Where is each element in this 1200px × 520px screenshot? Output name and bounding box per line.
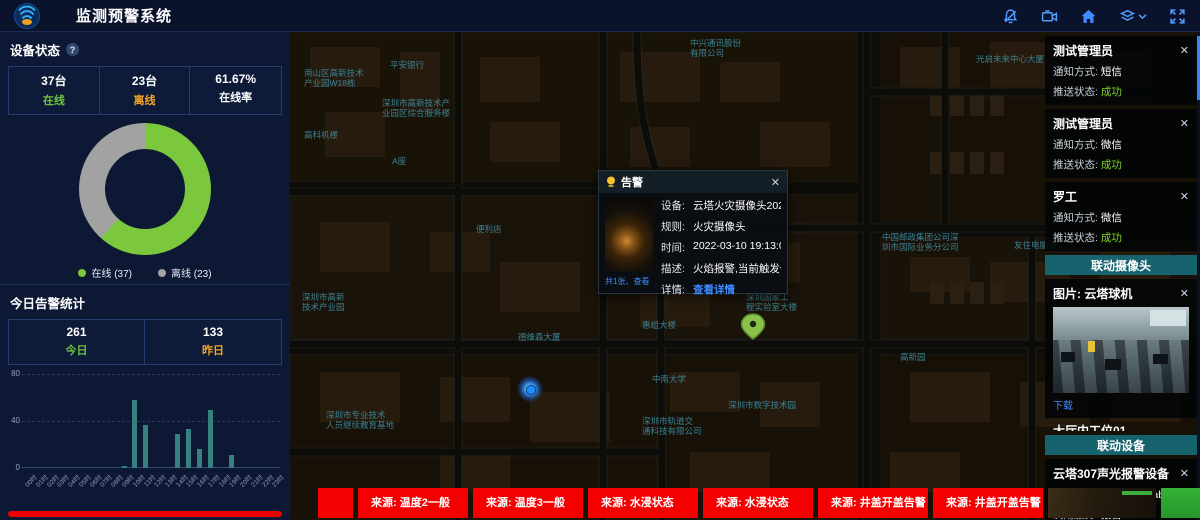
bar [226, 374, 237, 468]
map-place-label: 高科机楼 [304, 130, 339, 140]
device-donut-chart [0, 123, 290, 257]
bar [205, 374, 216, 468]
close-icon[interactable]: ✕ [1180, 467, 1189, 480]
map-place-label: 平安银行 [390, 60, 425, 70]
bar [44, 374, 55, 468]
x-axis-label: 23时 [269, 472, 286, 489]
bottom-alert-bar: 来源: 温度2一般来源: 温度3一般来源: 水浸状态来源: 水浸状态来源: 井盖… [290, 488, 1200, 520]
donut-legend: 在线 (37) 离线 (23) [0, 265, 290, 280]
scrolling-alert-item[interactable]: 来源: 水浸状态 [703, 488, 813, 518]
header-icons [1002, 0, 1186, 32]
map-place-label: 中南大学 [652, 374, 687, 384]
map-place-label: 深圳市高新技术产业园 [302, 292, 345, 312]
map-place-label: 高新园 [900, 352, 926, 362]
layers-icon [1119, 8, 1136, 25]
legend-online[interactable]: 在线 (37) [91, 265, 132, 280]
map-place-label: 南山区高新技术产业园W18栋 [304, 68, 364, 88]
map-place-label: 惠组大楼 [642, 320, 677, 330]
scrolling-alert-item[interactable]: 来源: 井盖开盖告警 [933, 488, 1043, 518]
notification-list: 测试管理员 ✕ 通知方式: 短信 推送状态: 成功 测试管理员 ✕ 通知方式: … [1045, 36, 1197, 251]
alarm-popup-rows: 设备: 云塔火灾摄像头202 规则: 火灾摄像头 时间: 2022-03-10 … [661, 198, 781, 303]
layers-menu[interactable] [1119, 8, 1147, 25]
close-icon[interactable]: ✕ [1180, 287, 1189, 300]
bar [33, 374, 44, 468]
today-alarms-table: 261 今日 133 昨日 [8, 319, 282, 365]
close-icon[interactable]: ✕ [1180, 44, 1189, 57]
video-thumbnail-1[interactable] [1048, 488, 1156, 518]
alarm-detail-row: 设备: 云塔火灾摄像头202 [661, 198, 781, 213]
map-place-label: 深圳市高新技术产业园区综合服务楼 [382, 98, 451, 118]
fullscreen-icon[interactable] [1169, 8, 1186, 25]
alarm-popup: 告警 ✕ 共1张、查看 设备: 云塔火灾摄像头202 规则: 火灾摄像头 时间:… [598, 170, 788, 294]
map-place-label: 深圳市数字技术园 [728, 400, 796, 410]
alarm-detail-value: 云塔火灾摄像头202 [693, 198, 781, 213]
legend-dot-online [78, 269, 86, 277]
linked-cameras-header[interactable]: 联动摄像头 [1045, 255, 1197, 275]
home-icon[interactable] [1080, 8, 1097, 25]
notification-card: 测试管理员 ✕ 通知方式: 微信 推送状态: 成功 [1045, 109, 1197, 178]
left-panel: 设备状态 ? 37台 在线 23台 离线 61.67% 在线率 在线 (37) [0, 32, 290, 520]
alarm-detail-label: 规则: [661, 219, 693, 234]
close-icon[interactable]: ✕ [771, 176, 780, 189]
video-camera-icon[interactable] [1041, 8, 1058, 25]
device-status-table: 37台 在线 23台 离线 61.67% 在线率 [8, 66, 282, 115]
linked-devices-header[interactable]: 联动设备 [1045, 435, 1197, 455]
alarm-detail-label: 描述: [661, 261, 693, 276]
stat-today: 261 今日 [9, 320, 145, 364]
bar [259, 374, 270, 468]
bar [194, 374, 205, 468]
device-name: 云塔307声光报警设备 [1053, 465, 1169, 482]
bar-series [22, 374, 280, 468]
snapshot-links[interactable]: 共1张、查看 [605, 276, 653, 287]
map-place-label: 光启未来中心大厦 [976, 54, 1045, 64]
map-place-label: 深圳市专业技术人员继续教育基地 [326, 410, 395, 430]
scrolling-alert-item[interactable]: 来源: 温度3一般 [473, 488, 583, 518]
map-place-label: 深圳市轨道交通科技有限公司 [642, 416, 702, 436]
bar [173, 374, 184, 468]
map-place-label: 便利店 [476, 224, 502, 234]
camera-card: 图片: 云塔球机 ✕ 下载 [1045, 279, 1197, 418]
bar [22, 374, 33, 468]
bar [65, 374, 76, 468]
right-panel: 测试管理员 ✕ 通知方式: 短信 推送状态: 成功 测试管理员 ✕ 通知方式: … [1045, 36, 1197, 520]
notification-recipient: 罗工 [1053, 188, 1077, 205]
alarm-detail-row: 描述: 火焰报警,当前触发值为 [661, 261, 781, 276]
hourly-alarm-bar-chart: 80 40 0 00时01时02时03时04时05时06时07时08时09时10… [8, 369, 282, 497]
camera-card-title: 图片: 云塔球机 [1053, 285, 1132, 302]
device-status-header: 设备状态 ? [0, 32, 290, 64]
scrolling-alert-item[interactable] [318, 488, 353, 518]
view-details-link[interactable]: 查看详情 [693, 282, 735, 297]
page-title: 监测预警系统 [76, 5, 172, 26]
bar [76, 374, 87, 468]
legend-dot-offline [158, 269, 166, 277]
stat-online-rate: 61.67% 在线率 [190, 67, 281, 114]
map-place-label: A座 [392, 156, 407, 166]
bar-x-labels: 00时01时02时03时04时05时06时07时08时09时10时11时12时1… [22, 470, 280, 496]
unhandled-progress [8, 511, 282, 517]
device-status-title: 设备状态 [10, 40, 60, 59]
help-icon[interactable]: ? [66, 43, 79, 56]
bar [119, 374, 130, 468]
alarm-snapshot-image[interactable] [605, 198, 653, 272]
alarm-detail-value: 火焰报警,当前触发值为 [693, 261, 781, 276]
notification-recipient: 测试管理员 [1053, 115, 1113, 132]
alarm-detail-label: 详情: [661, 282, 693, 297]
stat-offline: 23台 离线 [100, 67, 191, 114]
bar [140, 374, 151, 468]
notification-recipient: 测试管理员 [1053, 42, 1113, 59]
alarm-detail-label: 时间: [661, 240, 693, 255]
app-logo-icon [14, 3, 40, 29]
map-place-label: 中国邮政集团公司深圳市国际业务分公司 [882, 232, 959, 252]
alarm-detail-label: 设备: [661, 198, 693, 213]
scrolling-alert-item[interactable]: 来源: 水浸状态 [588, 488, 698, 518]
bar [269, 374, 280, 468]
alarm-detail-row: 详情: 查看详情 [661, 282, 781, 297]
bar [216, 374, 227, 468]
stat-yesterday: 133 昨日 [145, 320, 281, 364]
notification-card: 测试管理员 ✕ 通知方式: 短信 推送状态: 成功 [1045, 36, 1197, 105]
video-thumbnail-2[interactable] [1161, 488, 1200, 518]
header: 监测预警系统 [0, 0, 1200, 32]
bar [130, 374, 141, 468]
bar [237, 374, 248, 468]
alarm-lamp-icon [606, 176, 616, 188]
today-alarms-title: 今日告警统计 [10, 293, 85, 312]
legend-offline[interactable]: 离线 (23) [171, 265, 212, 280]
bar [248, 374, 259, 468]
alarm-detail-row: 时间: 2022-03-10 19:13:07 [661, 240, 781, 255]
stat-online: 37台 在线 [9, 67, 100, 114]
bar [151, 374, 162, 468]
bar [108, 374, 119, 468]
chevron-down-icon [1138, 12, 1147, 21]
scrolling-alert-item[interactable]: 来源: 温度2一般 [358, 488, 468, 518]
bar [87, 374, 98, 468]
alarm-detail-value: 火灾摄像头 [693, 219, 746, 234]
map-marker-blue-dot[interactable] [517, 376, 543, 402]
bell-off-icon[interactable] [1002, 8, 1019, 25]
app: 监测预警系统 [0, 0, 1200, 520]
alarm-popup-title: 告警 [621, 174, 766, 190]
bar [183, 374, 194, 468]
alarm-progress-bar [8, 511, 282, 517]
alarm-detail-value: 2022-03-10 19:13:07 [693, 240, 781, 255]
bar [97, 374, 108, 468]
next-camera-card-partial: 大厅内工位01 [1045, 422, 1197, 431]
bar [162, 374, 173, 468]
scrolling-alert-item[interactable]: 来源: 井盖开盖告警 [818, 488, 928, 518]
close-icon[interactable]: ✕ [1180, 117, 1189, 130]
alert-box-list: 来源: 温度2一般来源: 温度3一般来源: 水浸状态来源: 水浸状态来源: 井盖… [318, 488, 1048, 518]
camera-snapshot-image[interactable] [1053, 307, 1189, 393]
download-link[interactable]: 下载 [1053, 397, 1189, 412]
notification-card: 罗工 ✕ 通知方式: 微信 推送状态: 成功 [1045, 182, 1197, 251]
alarm-popup-header: 告警 ✕ [599, 171, 787, 193]
close-icon[interactable]: ✕ [1180, 190, 1189, 203]
alarm-detail-row: 规则: 火灾摄像头 [661, 219, 781, 234]
map-place-label: 德维森大厦 [518, 332, 561, 342]
today-alarms-header: 今日告警统计 [0, 285, 290, 317]
bar [54, 374, 65, 468]
